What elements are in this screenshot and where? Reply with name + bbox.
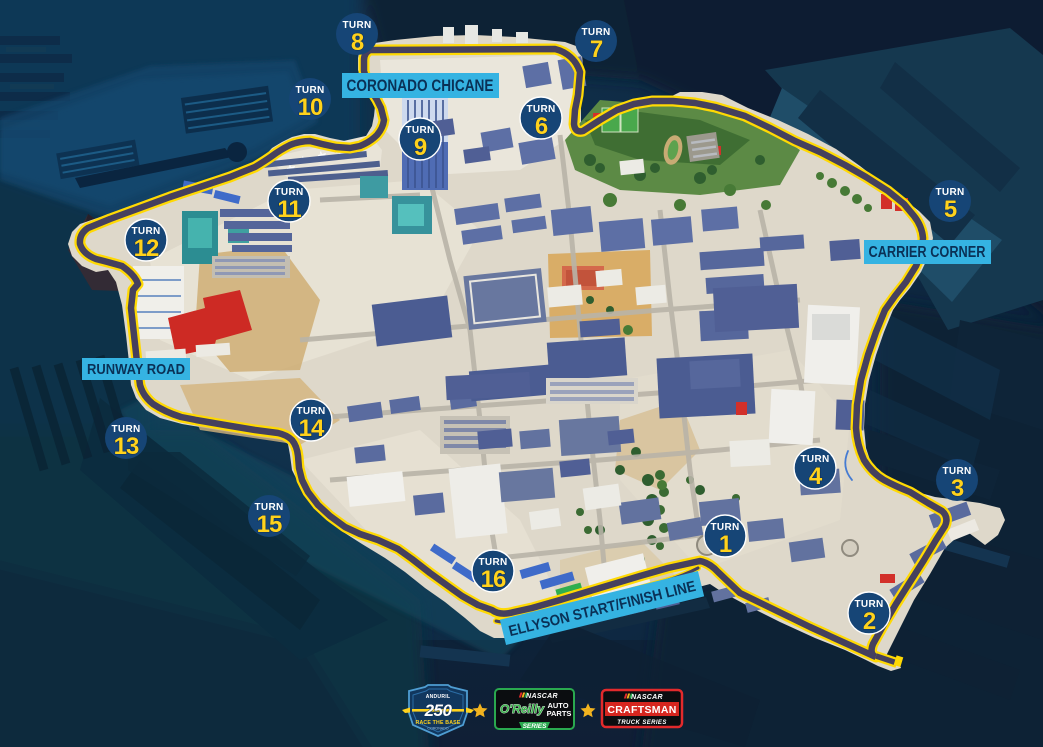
- svg-text:250: 250: [424, 701, 453, 720]
- svg-text:9: 9: [414, 134, 427, 161]
- svg-text:3: 3: [951, 475, 964, 502]
- svg-text:5: 5: [944, 196, 957, 223]
- svg-text:6: 6: [535, 113, 548, 140]
- svg-text:12: 12: [134, 235, 159, 262]
- svg-text:PARTS: PARTS: [547, 709, 572, 718]
- svg-text:2: 2: [863, 608, 876, 635]
- svg-text:SERIES: SERIES: [523, 723, 548, 730]
- svg-text:4: 4: [809, 463, 823, 490]
- svg-text:O'Reilly: O'Reilly: [500, 702, 546, 716]
- svg-text:NASCAR: NASCAR: [526, 693, 558, 700]
- svg-text:13: 13: [114, 433, 139, 460]
- svg-text:CORONADO CHICANE: CORONADO CHICANE: [347, 76, 494, 95]
- svg-text:NASCAR: NASCAR: [631, 694, 663, 701]
- svg-text:11: 11: [277, 196, 301, 223]
- svg-text:ANDURIL: ANDURIL: [426, 694, 451, 700]
- svg-text:CRAFTSMAN: CRAFTSMAN: [607, 704, 676, 716]
- svg-text:CARRIER CORNER: CARRIER CORNER: [869, 244, 986, 261]
- svg-text:CORONADO: CORONADO: [427, 727, 448, 731]
- svg-text:RUNWAY ROAD: RUNWAY ROAD: [87, 361, 185, 378]
- svg-text:15: 15: [257, 511, 282, 538]
- svg-text:1: 1: [719, 531, 732, 558]
- svg-text:TRUCK SERIES: TRUCK SERIES: [617, 720, 666, 726]
- svg-text:7: 7: [590, 36, 603, 63]
- svg-text:10: 10: [298, 94, 323, 121]
- svg-text:RACE THE BASE: RACE THE BASE: [416, 720, 461, 726]
- svg-text:8: 8: [351, 29, 364, 56]
- svg-text:16: 16: [481, 566, 506, 593]
- svg-text:14: 14: [299, 415, 325, 442]
